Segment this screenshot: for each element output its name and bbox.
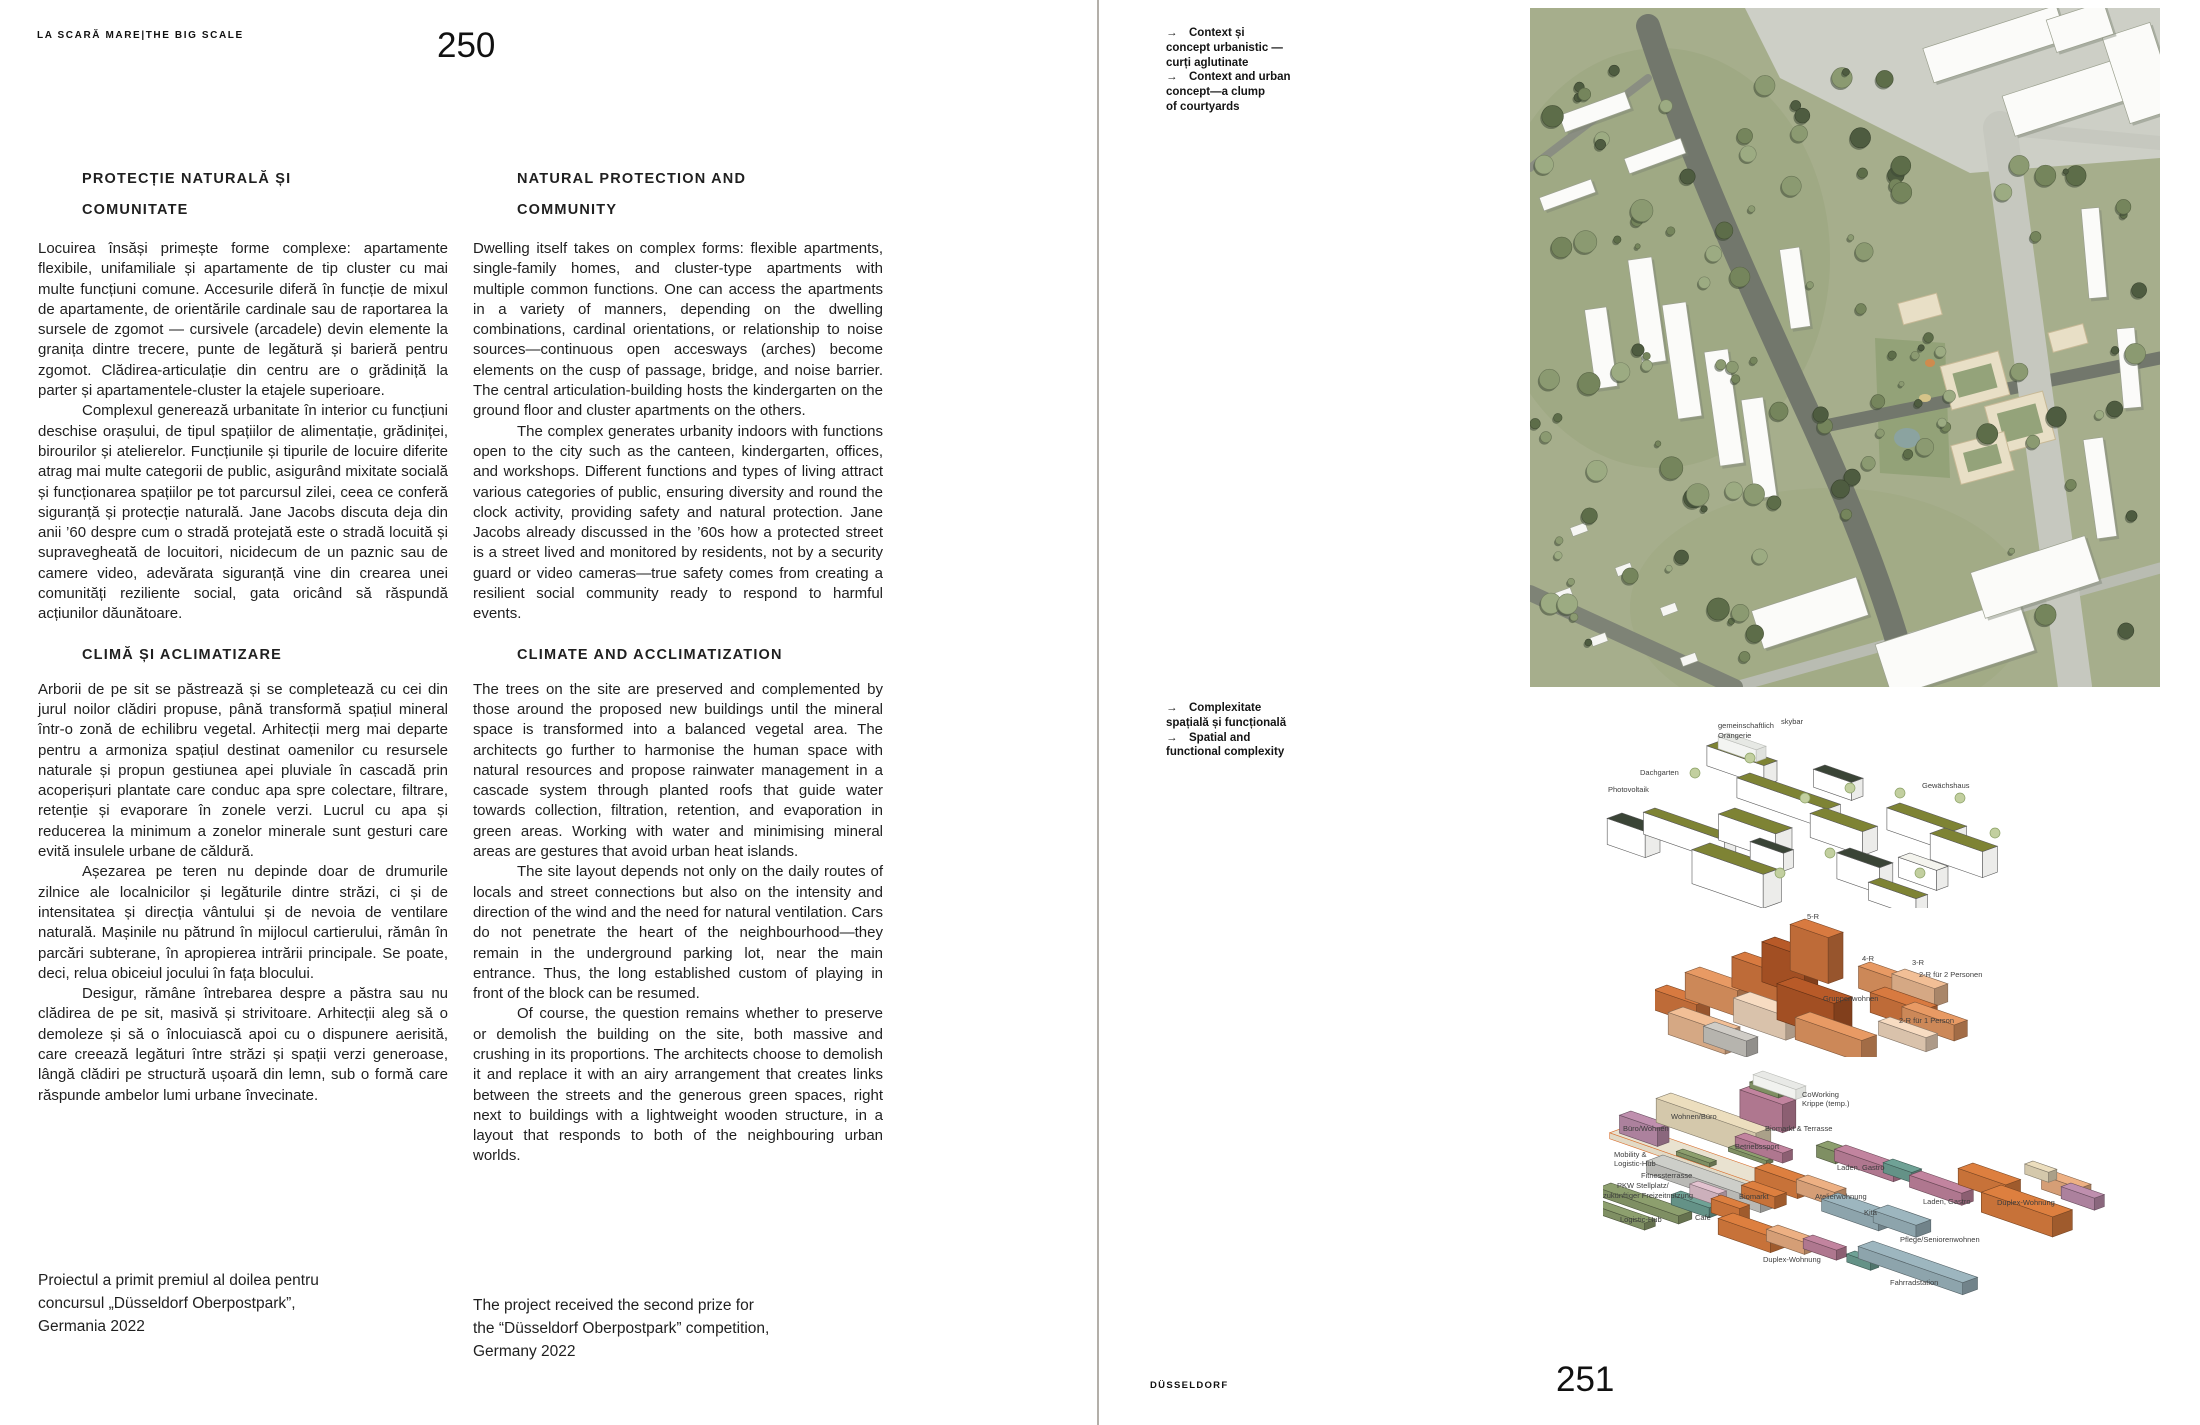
diagram-label: Biomarkt (1739, 1193, 1769, 1202)
diagram-label: zukünftiger Freizeitnutzung (1603, 1192, 1693, 1201)
diagram-label: Photovoltaik (1608, 786, 1649, 795)
diagram-label: Duplex-Wohnung (1997, 1199, 2055, 1208)
romanian-paragraph: Locuirea însăși primește forme complexe:… (38, 239, 448, 401)
english-paragraph: Of course, the question remains whether … (473, 1004, 883, 1166)
diagram-label: PKW Stellplatz/ (1617, 1182, 1669, 1191)
site-plan-aerial-image (1530, 8, 2160, 687)
diagram-label: Fahrradstation (1890, 1279, 1938, 1288)
page-number-right: 251 (1556, 1360, 1614, 1400)
diagram-label: gemeinschaftlich (1718, 722, 1774, 731)
diagram-label: Gewächshaus (1922, 782, 1970, 791)
credit-english: The project received the second prize fo… (473, 1294, 893, 1363)
english-paragraph: The complex generates urbanity indoors w… (473, 422, 883, 625)
english-heading-1: NATURAL PROTECTION AND COMMUNITY (517, 164, 883, 226)
diagram-label: Krippe (temp.) (1802, 1100, 1850, 1109)
diagram-label: Orangerie (1718, 732, 1751, 741)
romanian-paragraph: Așezarea pe teren nu depinde doar de dru… (38, 862, 448, 984)
diagram-label: Kita (1864, 1209, 1877, 1218)
diagram-green-roofs: gemeinschaftlich Orangerie skybar Dachga… (1600, 713, 2020, 908)
book-spread: LA SCARĂ MARE|THE BIG SCALE 250 PROTECȚI… (0, 0, 2200, 1425)
diagram-label: Laden, Gastro (1837, 1164, 1885, 1173)
diagram-label: Fitnessterrasse (1641, 1172, 1692, 1181)
diagram-label: skybar (1781, 718, 1803, 727)
page-gutter-divider (1097, 0, 1099, 1425)
diagram-label: 5-R (1807, 913, 1819, 922)
credit-romanian: Proiectul a primit premiul al doilea pen… (38, 1269, 458, 1338)
romanian-heading-1: PROTECȚIE NATURALĂ ȘI COMUNITATE (82, 164, 448, 226)
diagram-label: Wohnen/Büro (1671, 1113, 1717, 1122)
figure-caption-top: → Context și concept urbanistic — curți … (1166, 26, 1326, 115)
diagram-label: Logistic-Hub (1614, 1160, 1656, 1169)
diagram-functions: CoWorking Krippe (temp.) Wohnen/Büro Bür… (1603, 1063, 2148, 1298)
diagram-label: Pflege/Seniorenwohnen (1900, 1236, 1980, 1245)
diagram-label: Betriebssport (1735, 1143, 1779, 1152)
romanian-heading-2: CLIMĂ ȘI ACLIMATIZARE (82, 645, 448, 665)
footer-city-label: DÜSSELDORF (1150, 1380, 1228, 1391)
column-romanian: PROTECȚIE NATURALĂ ȘI COMUNITATE Locuire… (38, 164, 448, 1106)
english-paragraph: The trees on the site are preserved and … (473, 680, 883, 863)
diagram-label: Büro/Wohnen (1623, 1125, 1669, 1134)
diagram-label: Logistic-Hub (1620, 1216, 1662, 1225)
english-heading-2: CLIMATE AND ACCLIMATIZATION (517, 645, 883, 665)
page-number-left: 250 (437, 26, 495, 66)
english-paragraph: The site layout depends not only on the … (473, 862, 883, 1004)
running-head: LA SCARĂ MARE|THE BIG SCALE (37, 30, 244, 41)
diagram-label: Dachgarten (1640, 769, 1679, 778)
romanian-paragraph: Desigur, rămâne întrebarea despre a păst… (38, 984, 448, 1106)
diagram-label: Café (1695, 1214, 1711, 1223)
diagram-apartment-mix: 5-R 4-R 3-R 2-R für 2 Personen Gruppenwo… (1655, 907, 1985, 1057)
diagram-label: 2-R für 2 Personen (1919, 971, 1982, 980)
diagram-label: 4-R (1862, 955, 1874, 964)
diagram-label: 2-R für 1 Person (1899, 1017, 1954, 1026)
column-english: NATURAL PROTECTION AND COMMUNITY Dwellin… (473, 164, 883, 1167)
romanian-paragraph: Arborii de pe sit se păstrează și se com… (38, 680, 448, 863)
figure-caption-bottom: → Complexitate spațială și funcțională →… (1166, 701, 1326, 760)
diagram-label: Gruppenwohnen (1823, 995, 1878, 1004)
romanian-paragraph: Complexul generează urbanitate în interi… (38, 401, 448, 624)
diagram-label: Duplex-Wohnung (1763, 1256, 1821, 1265)
diagram-label: Atelierwohnung (1815, 1193, 1867, 1202)
diagram-label: 3-R (1912, 959, 1924, 968)
english-paragraph: Dwelling itself takes on complex forms: … (473, 239, 883, 422)
diagram-label: Laden, Gastro (1923, 1198, 1971, 1207)
diagram-label: Biomarkt & Terrasse (1765, 1125, 1832, 1134)
